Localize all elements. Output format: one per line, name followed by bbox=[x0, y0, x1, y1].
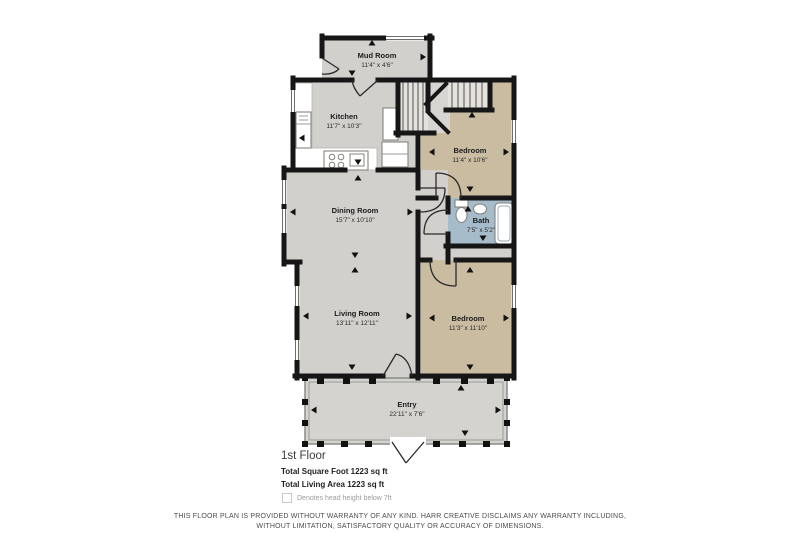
mud-room-dims: 11'4" x 4'6" bbox=[361, 62, 393, 69]
window bbox=[291, 90, 296, 112]
entry-porch bbox=[302, 375, 510, 463]
head-height-legend: Denotes head height below 7ft bbox=[282, 493, 392, 503]
mud-room-label: Mud Room bbox=[358, 51, 397, 60]
bath-dims: 7'5" x 5'2" bbox=[467, 227, 496, 234]
total-living-area: Total Living Area 1223 sq ft bbox=[281, 480, 384, 489]
legend-swatch-icon bbox=[282, 493, 292, 503]
floor-plan-page: { "page": { "colors": { "wall": "#161616… bbox=[0, 0, 800, 533]
bedroom-1-label: Bedroom bbox=[454, 146, 487, 155]
sink-icon bbox=[474, 204, 487, 214]
disclaimer: THIS FLOOR PLAN IS PROVIDED WITHOUT WARR… bbox=[0, 512, 800, 532]
floor-title: 1st Floor bbox=[281, 450, 326, 462]
window bbox=[512, 120, 517, 143]
kitchen-label: Kitchen bbox=[330, 112, 358, 121]
legend-note: Denotes head height below 7ft bbox=[297, 495, 392, 502]
toilet-icon bbox=[456, 208, 467, 223]
dining-room-dims: 15'7" x 10'10" bbox=[335, 217, 375, 224]
disclaimer-line-2: WITHOUT LIMITATION, SATISFACTORY QUALITY… bbox=[0, 522, 800, 532]
total-square-foot: Total Square Foot 1223 sq ft bbox=[281, 467, 388, 476]
window bbox=[386, 36, 424, 41]
porch-door-gap bbox=[390, 437, 426, 446]
dining-room-label: Dining Room bbox=[332, 206, 379, 215]
refrigerator-icon bbox=[296, 112, 311, 148]
kitchen-dims: 11'7" x 10'3" bbox=[326, 123, 362, 130]
window bbox=[295, 340, 300, 360]
entry-dims: 22'11" x 7'6" bbox=[389, 411, 425, 418]
entry-label: Entry bbox=[397, 400, 417, 409]
floor-plan-drawing: Mud Room 11'4" x 4'6" Kitchen 11'7" x 10… bbox=[0, 0, 800, 533]
toilet-tank bbox=[455, 200, 468, 207]
window bbox=[282, 180, 287, 204]
bedroom-2-label: Bedroom bbox=[452, 314, 485, 323]
living-room-label: Living Room bbox=[334, 309, 380, 318]
window bbox=[282, 209, 287, 233]
window bbox=[512, 285, 517, 308]
bedroom-1-dims: 11'4" x 10'6" bbox=[452, 157, 488, 164]
disclaimer-line-1: THIS FLOOR PLAN IS PROVIDED WITHOUT WARR… bbox=[0, 512, 800, 522]
window bbox=[295, 286, 300, 306]
bedroom-2-dims: 11'3" x 11'10" bbox=[449, 325, 488, 332]
bath-label: Bath bbox=[473, 216, 490, 225]
living-room-dims: 13'11" x 12'11" bbox=[336, 320, 379, 327]
